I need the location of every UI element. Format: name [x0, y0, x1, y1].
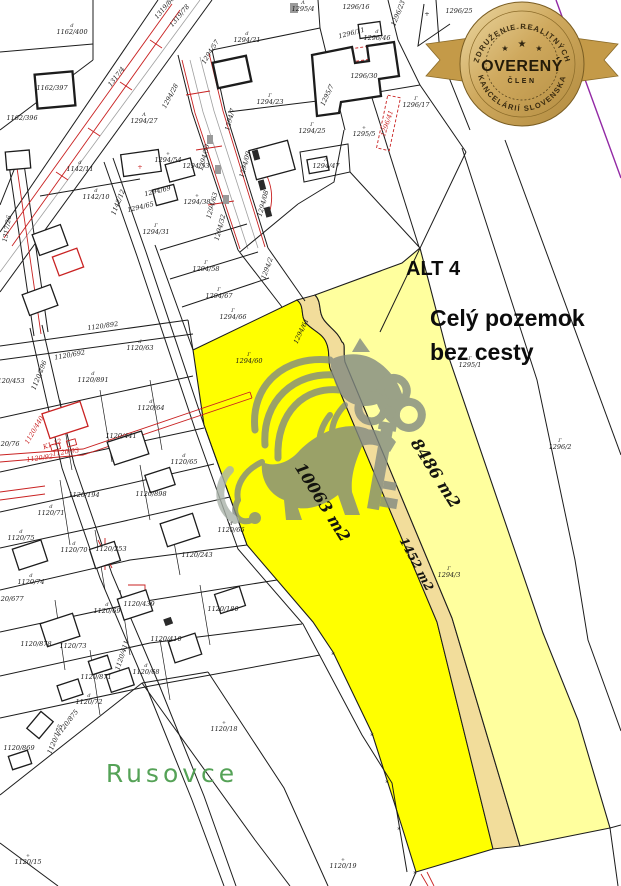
- parcel-label: 1120/440: [23, 415, 45, 446]
- parcel-label: 1120/869: [3, 744, 34, 752]
- note-line1: Celý pozemok: [430, 305, 585, 331]
- parcel-label: Γ1296/2: [549, 438, 572, 451]
- parcel-label: 1120/92: [26, 452, 54, 464]
- svg-text:1120/15: 1120/15: [14, 858, 41, 866]
- svg-text:1162/400: 1162/400: [56, 28, 87, 36]
- svg-text:1120/65: 1120/65: [170, 458, 197, 466]
- svg-text:1120/878: 1120/878: [20, 640, 51, 648]
- parcel-label: 1142/12: [109, 188, 127, 216]
- parcel-label: 1296/16: [342, 3, 369, 11]
- parcel-label: d1120/69: [93, 602, 120, 615]
- svg-text:1120/410: 1120/410: [150, 635, 181, 643]
- svg-text:1120/75: 1120/75: [7, 534, 34, 542]
- parcel-label: +: [137, 163, 142, 171]
- svg-text:1296/2: 1296/2: [549, 443, 572, 451]
- parcel-label: 1120/73: [59, 642, 86, 650]
- parcel-label: d1120/74: [17, 573, 44, 586]
- parcel-label: +1294/38: [183, 193, 210, 206]
- parcel-label: d1162/400: [56, 23, 87, 36]
- svg-text:+: +: [424, 10, 429, 18]
- svg-text:1294/65: 1294/65: [126, 200, 154, 214]
- svg-text:1294/58: 1294/58: [192, 265, 219, 273]
- parcel-label: 1294/2: [259, 256, 274, 280]
- svg-text:1294/27: 1294/27: [130, 117, 158, 125]
- parcel-label: Γ1296/17: [402, 96, 430, 109]
- parcel-label: 1120/410: [150, 635, 181, 643]
- svg-text:1120/19: 1120/19: [329, 862, 356, 870]
- svg-text:1295/5: 1295/5: [353, 130, 376, 138]
- svg-text:1294/67: 1294/67: [205, 292, 233, 300]
- parcel-label: +1120/19: [329, 857, 356, 870]
- parcel-label: 1294/28: [160, 82, 180, 110]
- parcel-label: Λ1295/4: [292, 0, 315, 13]
- parcel-label: 1120/677: [0, 595, 24, 603]
- parcel-label: d1120/65: [170, 453, 197, 466]
- parcel-label: 1296/25: [445, 7, 472, 15]
- svg-text:1294/28: 1294/28: [160, 82, 180, 110]
- svg-text:1120/72: 1120/72: [75, 698, 102, 706]
- svg-text:1295/4: 1295/4: [292, 5, 315, 13]
- svg-text:1296/17: 1296/17: [402, 101, 430, 109]
- svg-text:1120/411: 1120/411: [113, 639, 130, 671]
- svg-text:1296/25: 1296/25: [445, 7, 472, 15]
- svg-text:1120/891: 1120/891: [77, 376, 108, 384]
- svg-text:1120/871: 1120/871: [80, 673, 111, 681]
- parcel-label: d1294/21: [233, 31, 260, 44]
- svg-text:1120/677: 1120/677: [0, 595, 24, 603]
- svg-text:1120/66: 1120/66: [217, 526, 244, 534]
- parcel-label: 1317/26: [1, 215, 14, 243]
- parcel-label: 1296/23: [389, 0, 407, 27]
- parcel-label: Γ1294/67: [205, 287, 233, 300]
- parcel-label: 1120/253: [95, 545, 126, 553]
- parcel-label: 1120/441: [105, 432, 136, 440]
- svg-text:1296/23: 1296/23: [389, 0, 407, 27]
- parcel-label: Λ1294/27: [130, 112, 158, 125]
- svg-text:1120/18: 1120/18: [210, 725, 237, 733]
- parcel-label: Γ1294/25: [298, 122, 325, 135]
- svg-text:1120/74: 1120/74: [17, 578, 44, 586]
- parcel-label: +1120/15: [14, 853, 41, 866]
- svg-text:1294/09: 1294/09: [238, 150, 253, 178]
- svg-text:1296/46: 1296/46: [363, 34, 390, 42]
- svg-text:1294/32: 1294/32: [213, 213, 228, 241]
- svg-text:1294/47: 1294/47: [312, 162, 340, 170]
- svg-text:1120/441: 1120/441: [105, 432, 136, 440]
- svg-text:1120/692: 1120/692: [54, 348, 86, 361]
- note-line2: bez cesty: [430, 339, 534, 365]
- badge-star-left: ★: [501, 44, 508, 53]
- parcel-label: 1120/898: [135, 490, 166, 498]
- svg-text:1120/440: 1120/440: [23, 415, 45, 446]
- parcel-label: 1120/411: [113, 639, 130, 671]
- svg-text:1162/396: 1162/396: [6, 114, 37, 122]
- parcel-label: 1120/296: [30, 359, 49, 391]
- svg-text:1294/31: 1294/31: [142, 228, 169, 236]
- cadastral-map-page: d1162/4001162/3971162/3961317/41319/8013…: [0, 0, 621, 886]
- svg-text:+: +: [137, 163, 142, 171]
- parcel-label: 1120/871: [80, 673, 111, 681]
- parcel-label: 1120/453: [0, 377, 25, 385]
- badge-star-right: ★: [535, 44, 542, 53]
- certification-badge: ZDRUŽENIE REALITNÝCH KANCELÁRIÍ SLOVENSK…: [426, 2, 618, 126]
- parcel-label: d1120/75: [7, 529, 34, 542]
- svg-text:1142/12: 1142/12: [109, 188, 127, 216]
- svg-text:1120/869: 1120/869: [3, 744, 34, 752]
- parcel-label: Γ1294/58: [192, 260, 219, 273]
- svg-text:1296/30: 1296/30: [350, 72, 377, 80]
- parcel-label: Γ1294/23: [256, 93, 283, 106]
- parcel-label: d1120/63: [126, 339, 153, 352]
- svg-text:1142/11: 1142/11: [66, 165, 93, 173]
- parcel-label: 1162/397: [36, 84, 68, 92]
- parcel-label: d1120/891: [77, 371, 108, 384]
- parcel-label: +: [424, 10, 429, 18]
- svg-text:1317/26: 1317/26: [1, 215, 14, 243]
- svg-text:1120/63: 1120/63: [126, 344, 153, 352]
- svg-text:1294/54: 1294/54: [154, 156, 181, 164]
- parcel-label: +1295/5: [353, 125, 376, 138]
- svg-text:1294/38: 1294/38: [183, 198, 210, 206]
- svg-text:1120/453: 1120/453: [0, 377, 25, 385]
- parcel-label: 1294/32: [213, 213, 228, 241]
- alt-label: ALT 4: [406, 258, 461, 280]
- parcel-label: 1120/76: [0, 440, 20, 448]
- parcel-label: 1120/194: [68, 491, 99, 499]
- svg-text:1120/296: 1120/296: [30, 359, 49, 391]
- parcel-label: 1294/65: [126, 200, 154, 214]
- parcel-label: 1120/439: [123, 600, 154, 608]
- svg-text:1120/180: 1120/180: [207, 605, 238, 613]
- svg-text:1294/60: 1294/60: [235, 357, 262, 365]
- svg-text:1120/253: 1120/253: [95, 545, 126, 553]
- svg-text:1294/25: 1294/25: [298, 127, 325, 135]
- badge-star-middle: ★: [518, 39, 527, 50]
- svg-text:1294/21: 1294/21: [233, 36, 260, 44]
- svg-text:1120/68: 1120/68: [132, 668, 159, 676]
- parcel-label: d1142/11: [66, 160, 93, 173]
- parcel-label: 1294/63: [205, 191, 220, 219]
- svg-text:1120/439: 1120/439: [123, 600, 154, 608]
- place-label: Rusovce: [106, 759, 238, 788]
- svg-text:1120/76: 1120/76: [0, 440, 20, 448]
- svg-text:1294/63: 1294/63: [205, 191, 220, 219]
- svg-text:1120/73: 1120/73: [59, 642, 86, 650]
- parcel-label: Γ1294/31: [142, 223, 169, 236]
- svg-text:1120/194: 1120/194: [68, 491, 99, 499]
- parcel-label: 1162/396: [6, 114, 37, 122]
- parcel-label: d1120/64: [137, 399, 164, 412]
- svg-text:1319/78: 1319/78: [168, 3, 191, 29]
- svg-text:1294/23: 1294/23: [256, 98, 283, 106]
- svg-text:1162/397: 1162/397: [36, 84, 68, 92]
- parcel-label: 1294/09: [238, 150, 253, 178]
- parcel-label: 1319/78: [168, 3, 191, 29]
- parcel-label: d1120/70: [60, 541, 87, 554]
- cadastral-map: d1162/4001162/3971162/3961317/41319/8013…: [0, 0, 621, 886]
- svg-text:1120/70: 1120/70: [60, 546, 87, 554]
- svg-text:1120/898: 1120/898: [135, 490, 166, 498]
- badge-member: ČLEN: [507, 76, 536, 85]
- parcel-label: 1120/878: [20, 640, 51, 648]
- parcel-label: 1296/30: [350, 72, 377, 80]
- svg-text:1296/16: 1296/16: [342, 3, 369, 11]
- parcel-label: 1120/692: [54, 348, 86, 361]
- parcel-label: 1120/180: [207, 605, 238, 613]
- parcel-label: +1120/18: [210, 720, 237, 733]
- svg-text:1294/3: 1294/3: [438, 571, 461, 579]
- badge-title: OVERENÝ: [481, 56, 563, 75]
- parcel-label: d1142/10: [82, 188, 109, 201]
- svg-text:1120/71: 1120/71: [37, 509, 64, 517]
- svg-text:1120/64: 1120/64: [137, 404, 164, 412]
- svg-text:1120/243: 1120/243: [181, 551, 212, 559]
- svg-text:1120/92: 1120/92: [26, 452, 54, 464]
- parcel-label: 1120/243: [181, 551, 212, 559]
- parcel-label: Γ1294/66: [219, 308, 246, 321]
- parcel-label: d1120/71: [37, 504, 64, 517]
- svg-text:1120/69: 1120/69: [93, 607, 120, 615]
- highlighted-parcels: [193, 248, 610, 872]
- svg-text:1294/2: 1294/2: [259, 256, 274, 280]
- svg-text:1294/66: 1294/66: [219, 313, 246, 321]
- svg-text:1142/10: 1142/10: [82, 193, 109, 201]
